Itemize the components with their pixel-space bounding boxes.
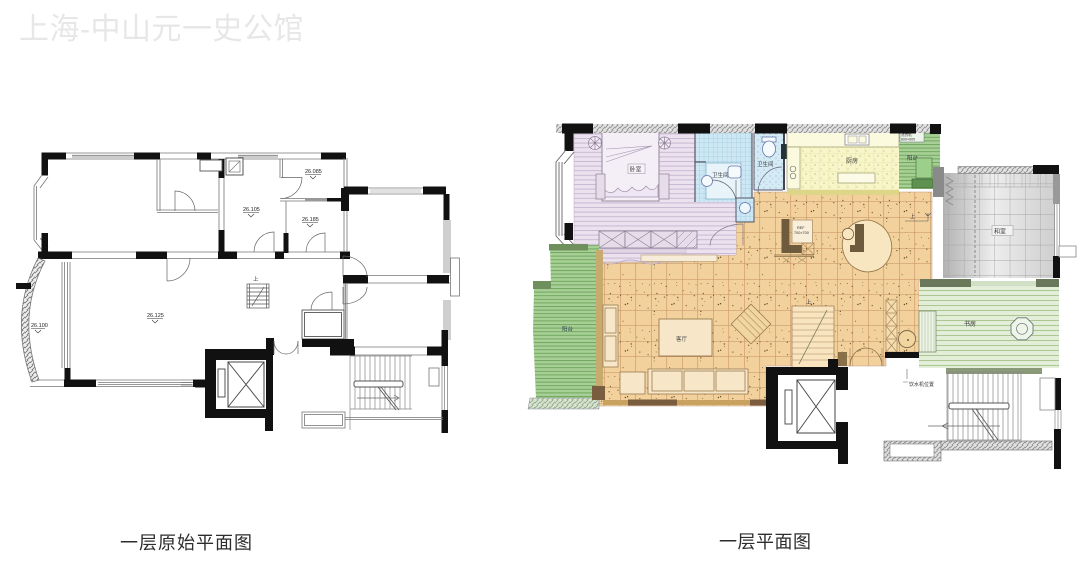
svg-text:阳台: 阳台: [562, 325, 574, 333]
svg-text:卫生间: 卫生间: [712, 171, 729, 179]
svg-text:REF: REF: [797, 226, 805, 230]
svg-text:和室: 和室: [994, 228, 1006, 236]
svg-text:26.185: 26.185: [302, 217, 319, 223]
svg-text:700×700: 700×700: [794, 231, 809, 235]
svg-text:600×600: 600×600: [901, 138, 915, 142]
svg-text:上: 上: [253, 275, 259, 283]
svg-text:26.100: 26.100: [31, 323, 48, 329]
svg-text:卧室: 卧室: [630, 166, 642, 174]
svg-text:26.125: 26.125: [147, 313, 164, 319]
svg-text:26.085: 26.085: [305, 169, 322, 175]
svg-text:上: 上: [806, 298, 812, 306]
svg-text:饮水机位置: 饮水机位置: [909, 381, 934, 388]
svg-text:上: 上: [910, 213, 915, 220]
svg-text:客厅: 客厅: [676, 335, 688, 343]
svg-text:书房: 书房: [964, 320, 976, 328]
svg-text:厨房: 厨房: [846, 157, 858, 165]
svg-text:卫生间: 卫生间: [757, 160, 774, 168]
svg-text:26.105: 26.105: [243, 207, 260, 213]
